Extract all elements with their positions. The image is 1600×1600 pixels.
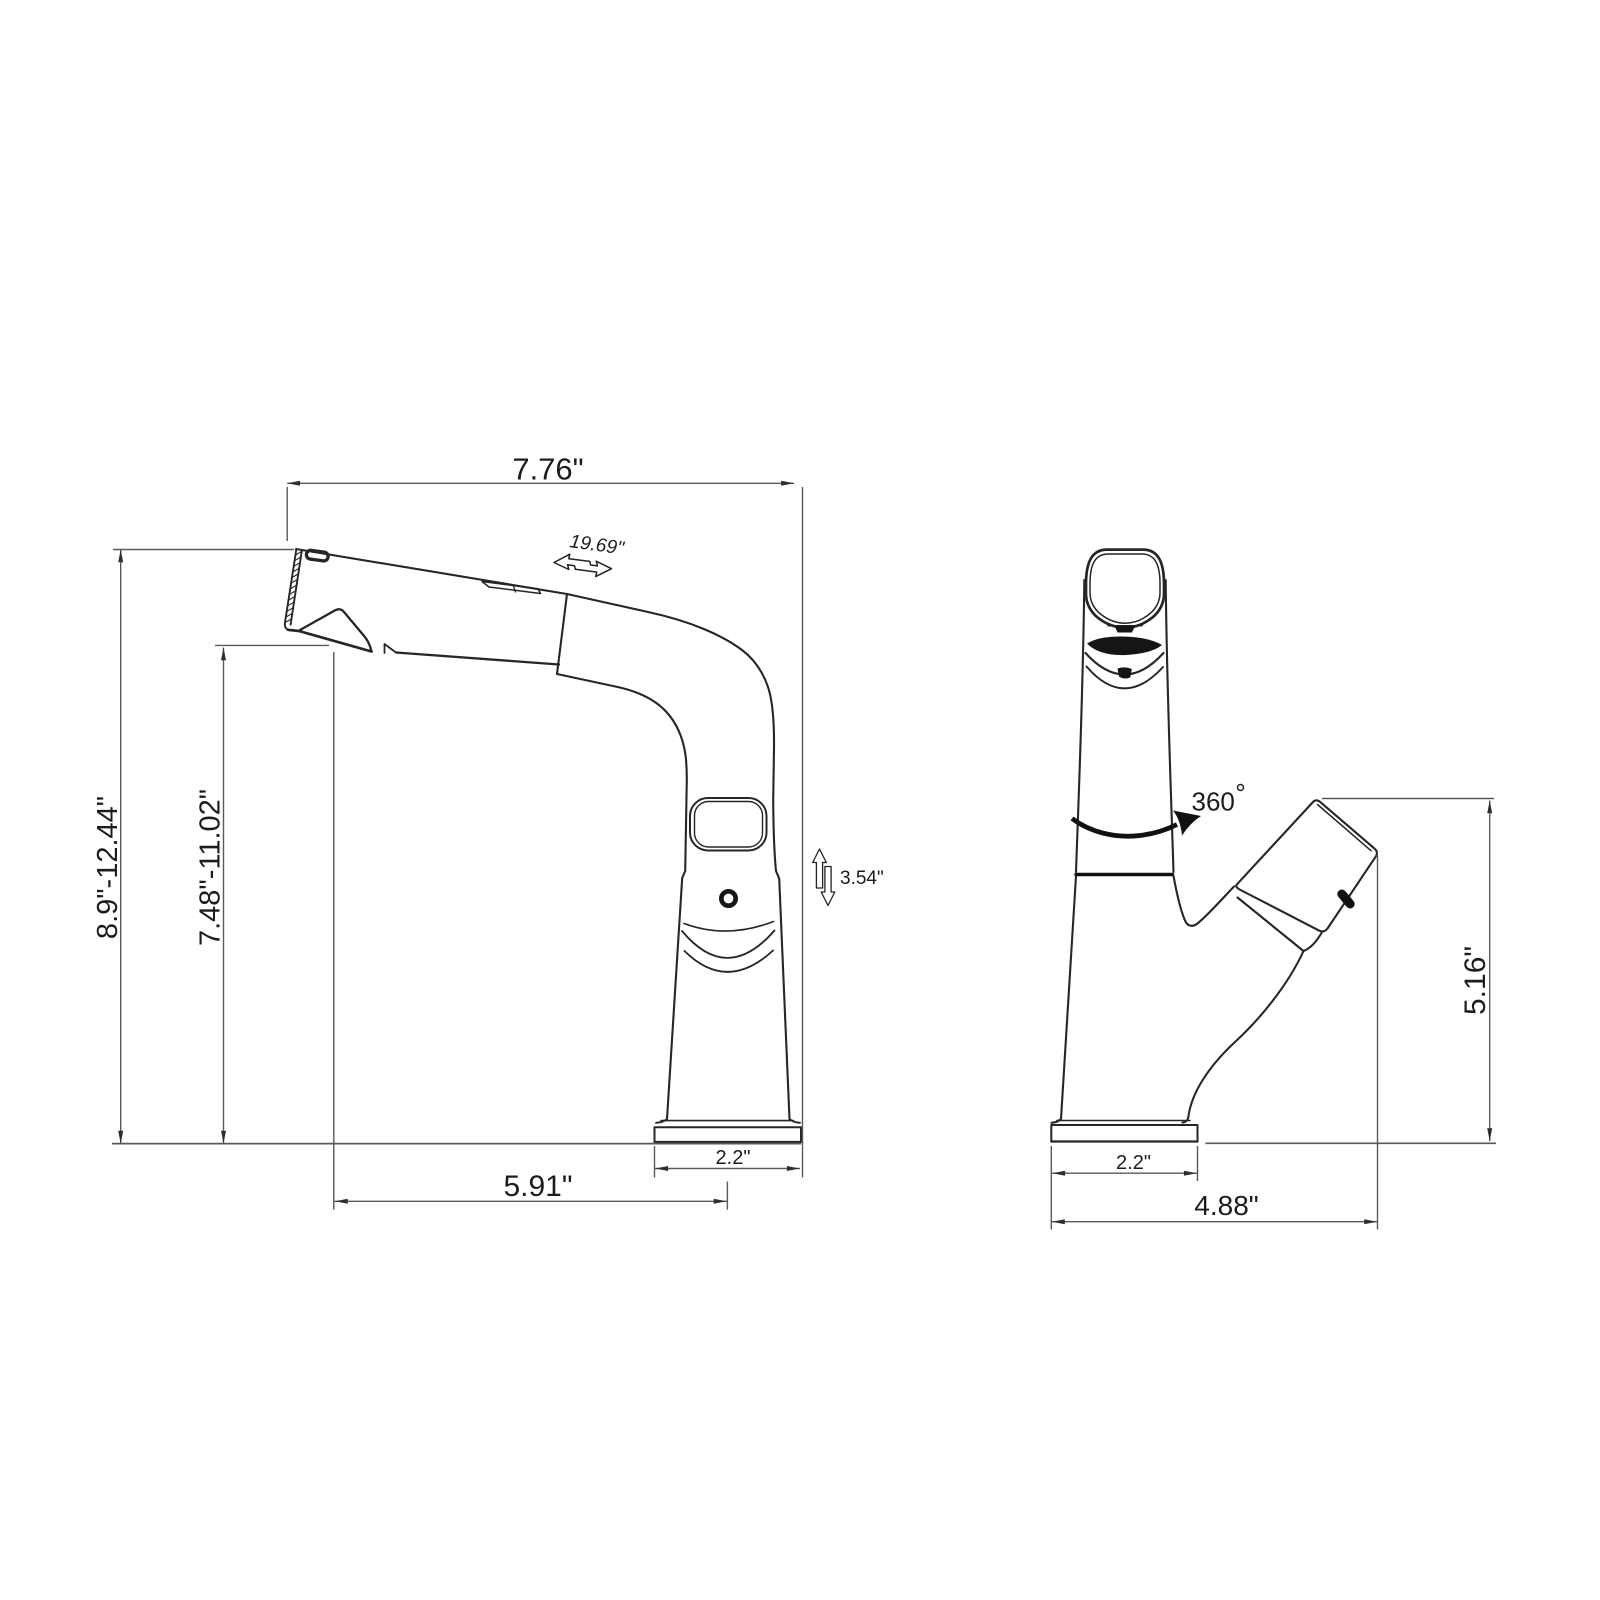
svg-text:2.2": 2.2" [1116,1152,1151,1174]
svg-text:5.16": 5.16" [1459,946,1492,1015]
svg-text:2.2": 2.2" [716,1147,751,1169]
svg-text:19.69": 19.69" [568,531,626,560]
svg-text:8.9"-12.44": 8.9"-12.44" [92,796,124,939]
svg-text:7.48"-11.02": 7.48"-11.02" [195,789,227,946]
svg-text:360: 360 [1192,787,1235,817]
svg-text:7.76": 7.76" [512,452,583,487]
svg-text:3.54": 3.54" [840,868,884,889]
svg-text:5.91": 5.91" [503,1170,572,1203]
svg-text:4.88": 4.88" [1194,1190,1258,1221]
